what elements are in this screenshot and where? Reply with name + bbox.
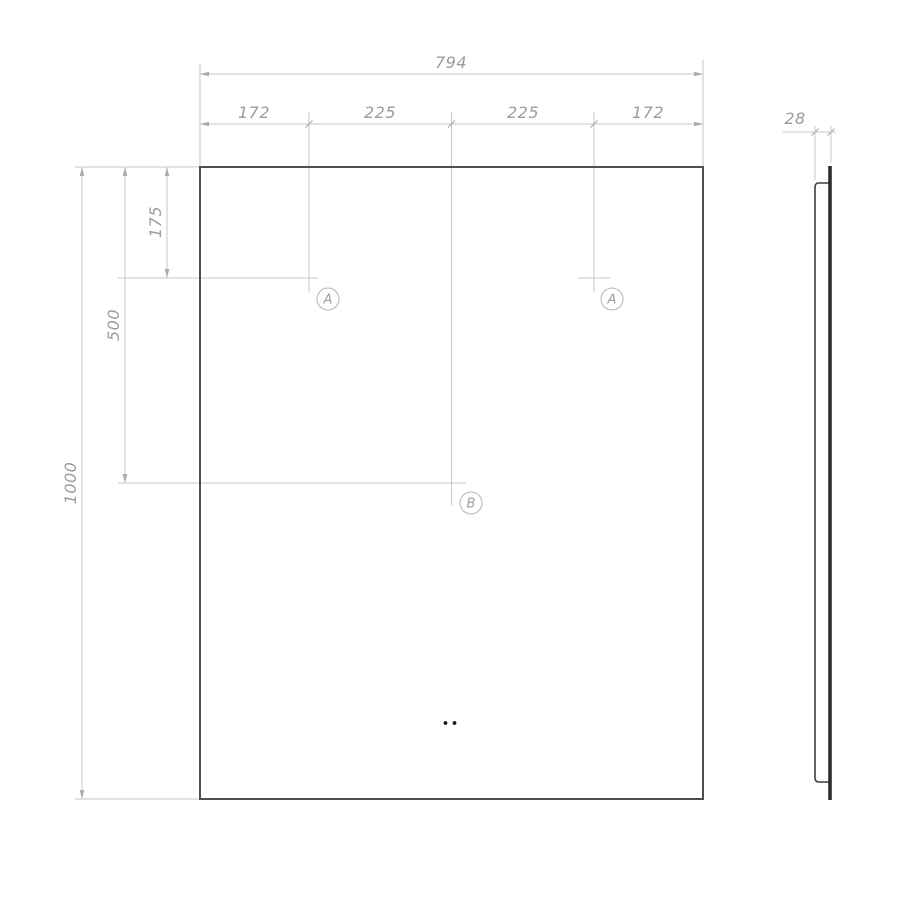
- dimension-hole-b-height: 500: [104, 167, 127, 483]
- dim-label-overall-height: 1000: [61, 462, 80, 505]
- sensor-dot: [453, 721, 457, 725]
- technical-drawing-canvas: 794 172 225 225 172 1000 500 175: [0, 0, 900, 900]
- dimension-arrow: [80, 790, 85, 799]
- dim-label-depth: 28: [784, 109, 805, 128]
- dimension-hole-a-height: 175: [146, 167, 169, 278]
- side-view: 28: [783, 109, 836, 800]
- side-view-glass-profile: [828, 166, 832, 800]
- dim-label-segment-2: 225: [364, 103, 396, 122]
- hole-b-label: B: [467, 497, 476, 512]
- dimension-arrow: [165, 269, 170, 278]
- dimension-overall-width: 794: [200, 53, 703, 76]
- dimension-arrow: [123, 474, 128, 483]
- mirror-dimension-drawing: 794 172 225 225 172 1000 500 175: [0, 0, 900, 900]
- touch-sensor-dots: [444, 721, 457, 725]
- hole-marker-b: B: [460, 492, 482, 514]
- hole-a2-label: A: [607, 293, 617, 308]
- dimension-arrow: [694, 122, 703, 127]
- extension-lines-group: [75, 60, 703, 799]
- dim-label-segment-1: 172: [238, 103, 270, 122]
- dimension-arrow: [200, 122, 209, 127]
- dimension-arrow: [165, 167, 170, 176]
- dimension-overall-height: 1000: [61, 167, 84, 799]
- dimension-arrow: [80, 167, 85, 176]
- hole-marker-a2: A: [601, 288, 623, 310]
- dim-label-segment-4: 172: [632, 103, 664, 122]
- hole-a1-label: A: [323, 293, 333, 308]
- hole-marker-a1: A: [317, 288, 339, 310]
- dimension-arrow: [694, 72, 703, 77]
- dim-label-overall-width: 794: [435, 53, 467, 72]
- dim-label-hole-b-height: 500: [104, 309, 123, 341]
- sensor-dot: [444, 721, 448, 725]
- dim-label-segment-3: 225: [507, 103, 539, 122]
- dimension-arrow: [200, 72, 209, 77]
- side-view-back-profile: [815, 183, 829, 782]
- dimension-arrow: [123, 167, 128, 176]
- dim-label-hole-a-height: 175: [146, 206, 165, 238]
